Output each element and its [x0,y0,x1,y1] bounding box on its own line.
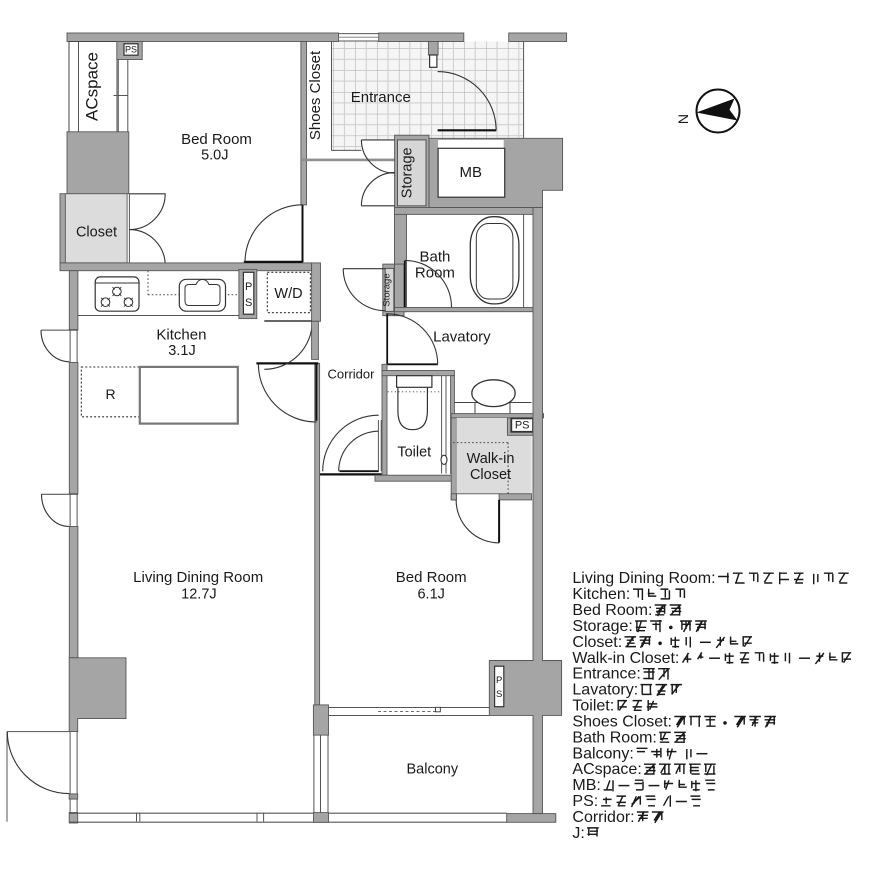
svg-text:Closet:: Closet: [572,634,622,651]
svg-text:Kitchen: Kitchen [156,327,206,344]
svg-text:6.1J: 6.1J [417,587,444,603]
svg-text:Balcony: Balcony [407,762,459,778]
svg-text:3.1J: 3.1J [168,343,195,359]
svg-text:Bed Room: Bed Room [396,569,467,586]
svg-text:P: P [496,675,502,686]
svg-text:MB: MB [460,164,483,181]
svg-text:Storage:: Storage: [572,618,632,635]
svg-text:Bed Room:: Bed Room: [572,602,652,619]
svg-text:ACspace:: ACspace: [572,761,641,778]
svg-text:Toilet:: Toilet: [572,698,614,715]
svg-text:Bath: Bath [419,249,450,266]
svg-text:Entrance: Entrance [351,89,411,106]
svg-text:Kitchen:: Kitchen: [572,586,630,603]
svg-text:Walk-in Closet:: Walk-in Closet: [572,650,679,667]
svg-text:Bed Room: Bed Room [181,131,252,148]
svg-text:PS: PS [515,420,530,432]
svg-text:Corridor:: Corridor: [572,809,634,826]
svg-text:Balcony:: Balcony: [572,745,633,762]
svg-text:Lavatory: Lavatory [433,328,491,345]
svg-text:PS:: PS: [572,793,598,810]
svg-text:Living Dining Room:: Living Dining Room: [572,570,715,587]
svg-text:R: R [105,386,115,402]
svg-text:J:: J: [572,825,584,842]
svg-text:ACspace: ACspace [83,52,102,121]
svg-text:Lavatory:: Lavatory: [572,682,638,699]
svg-text:Toilet: Toilet [397,445,431,461]
svg-text:Room: Room [415,265,455,282]
svg-text:P: P [245,281,252,293]
svg-text:Closet: Closet [470,467,511,483]
svg-text:W/D: W/D [274,286,302,302]
svg-text:Shoes Closet:: Shoes Closet: [572,714,672,731]
svg-text:PS: PS [125,45,137,55]
svg-text:Closet: Closet [76,225,117,241]
svg-text:S: S [245,297,252,309]
svg-text:MB:: MB: [572,777,600,794]
svg-text:Bath Room:: Bath Room: [572,729,656,746]
svg-text:Corridor: Corridor [328,367,376,382]
svg-text:Storage: Storage [400,147,416,198]
svg-text:Entrance:: Entrance: [572,666,640,683]
svg-text:N: N [675,114,691,124]
svg-text:12.7J: 12.7J [181,587,216,603]
svg-text:S: S [496,689,502,700]
svg-text:Storage: Storage [382,273,393,306]
svg-text:Living Dining Room: Living Dining Room [133,569,263,586]
svg-text:5.0J: 5.0J [201,148,228,164]
svg-text:Shoes Closet: Shoes Closet [307,50,324,140]
svg-text:Walk-in: Walk-in [467,451,515,467]
